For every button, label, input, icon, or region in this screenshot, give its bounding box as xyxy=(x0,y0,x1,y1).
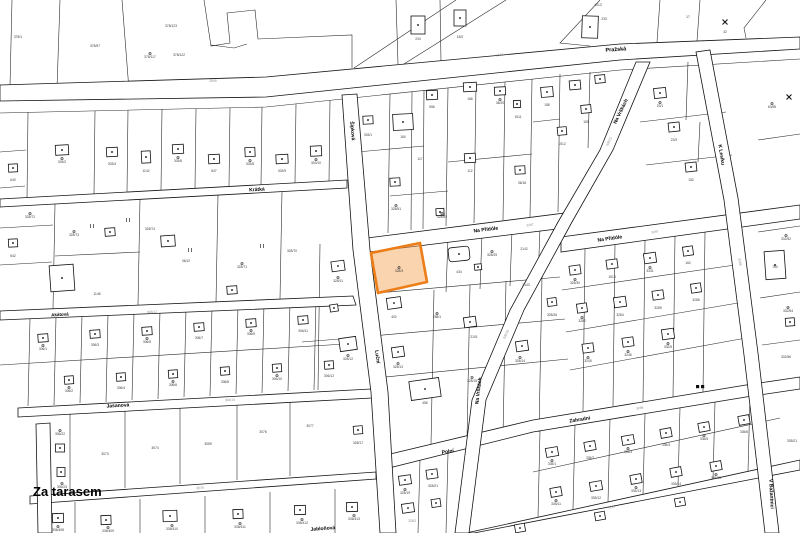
road xyxy=(466,460,800,533)
parcel-label: 303/4 xyxy=(108,162,116,166)
parcel-label: 112 xyxy=(467,169,472,173)
building xyxy=(105,228,116,237)
building-dot xyxy=(516,103,518,105)
parcel-label: 3286 xyxy=(692,298,700,302)
parcel-boundary xyxy=(673,236,675,397)
road xyxy=(18,389,372,417)
building xyxy=(55,145,69,156)
parcel-label: 335/13 xyxy=(631,486,641,493)
building xyxy=(515,166,525,175)
svg-text:328/72: 328/72 xyxy=(25,215,35,219)
building xyxy=(582,16,599,39)
building xyxy=(576,303,587,313)
road xyxy=(342,94,396,533)
parcel-label: 306/2 xyxy=(65,386,73,393)
building-dot xyxy=(250,322,252,324)
building-dot xyxy=(690,166,692,168)
parcel-label: 233 xyxy=(601,17,607,21)
parcel-label: 336/411 xyxy=(234,522,246,529)
parcel-label: 332/5 xyxy=(664,342,672,349)
building-dot xyxy=(172,373,174,375)
parcel-label: 3073 xyxy=(101,452,109,456)
building xyxy=(194,323,205,332)
parcel-label: 306/11 xyxy=(298,329,308,333)
svg-text:3059: 3059 xyxy=(204,442,212,446)
svg-text:328/3: 328/3 xyxy=(395,269,403,273)
building xyxy=(690,283,701,293)
building xyxy=(56,444,65,452)
building xyxy=(276,154,288,164)
building xyxy=(545,447,558,458)
parcel-boundary xyxy=(314,299,316,390)
svg-text:3331: 3331 xyxy=(646,269,654,273)
parcel-boundary xyxy=(54,317,56,405)
parcel-label: 328/21 xyxy=(428,484,438,488)
parcel-boundary xyxy=(27,112,28,198)
parcel-label: 32 xyxy=(723,30,727,34)
svg-text:336/411: 336/411 xyxy=(234,525,246,529)
parcel-label: 306/12 xyxy=(324,374,334,378)
parcel-label: 17 xyxy=(686,15,690,19)
parcel-label: 335/21 xyxy=(787,439,797,443)
parcel-label: 258/1 xyxy=(433,312,441,319)
svg-text:328/13: 328/13 xyxy=(393,365,403,369)
building-dot xyxy=(351,506,353,508)
parcel-label: 1142 xyxy=(142,169,149,173)
street-name-label: Krátká xyxy=(249,186,265,193)
parcel-boundary xyxy=(748,396,750,471)
svg-text:1511: 1511 xyxy=(514,115,521,119)
parcel-label: 3285 xyxy=(654,306,662,310)
svg-text:258/1: 258/1 xyxy=(433,315,441,319)
parcel-boundary xyxy=(210,307,212,396)
svg-text:328/25: 328/25 xyxy=(487,253,497,257)
building-dot xyxy=(599,78,601,80)
building xyxy=(613,296,626,308)
parcel-boundary xyxy=(94,111,95,194)
building-dot xyxy=(687,250,689,252)
svg-text:328/51: 328/51 xyxy=(391,207,401,211)
building xyxy=(339,336,358,351)
building xyxy=(426,90,437,100)
parcel-label: 303/14 xyxy=(225,398,235,403)
parcel-label: 328/51 xyxy=(391,204,401,211)
svg-text:303/2: 303/2 xyxy=(58,160,66,164)
building-dot xyxy=(393,302,395,304)
building-dot xyxy=(61,149,63,151)
building xyxy=(101,515,111,524)
parcel-boundary xyxy=(643,414,645,494)
svg-text:1513: 1513 xyxy=(608,275,616,279)
building xyxy=(49,264,75,292)
svg-text:3282: 3282 xyxy=(578,319,586,323)
parcel-label: 162 xyxy=(685,261,691,265)
building xyxy=(168,370,178,379)
svg-text:328/30: 328/30 xyxy=(570,281,580,285)
parcel-label: 336/408 xyxy=(52,525,64,532)
svg-text:335/14: 335/14 xyxy=(671,482,681,486)
svg-text:306/3: 306/3 xyxy=(91,343,99,347)
svg-text:166: 166 xyxy=(467,97,473,101)
parcel-label: 328/30 xyxy=(570,278,580,285)
building-dot xyxy=(649,257,651,259)
parcel-label: 336/410 xyxy=(166,524,178,531)
building xyxy=(346,502,357,511)
svg-text:847: 847 xyxy=(211,169,217,173)
parcel-boundary xyxy=(329,100,330,181)
svg-text:306/6: 306/6 xyxy=(169,383,177,387)
parcel-label: 306/22 xyxy=(55,429,65,436)
building-dot xyxy=(546,91,548,93)
building-dot xyxy=(715,465,717,467)
building xyxy=(298,316,309,325)
building xyxy=(272,364,282,373)
building-dot xyxy=(111,151,113,153)
parcel-label: 434 xyxy=(456,270,462,274)
svg-text:2142: 2142 xyxy=(520,247,528,251)
building-dot xyxy=(595,485,597,487)
building-dot xyxy=(328,364,330,366)
building xyxy=(710,461,722,472)
building-dot xyxy=(589,445,591,447)
svg-text:303/14: 303/14 xyxy=(225,398,235,403)
parcel-label: 3284 xyxy=(616,313,624,317)
building xyxy=(595,75,606,84)
building-dot xyxy=(167,240,169,242)
parcel-boundary xyxy=(423,90,424,229)
parcel-label: 2142 xyxy=(520,247,528,251)
parcel-label: 556 xyxy=(429,105,435,109)
parcel-boundary xyxy=(280,191,282,299)
parcel-boundary xyxy=(686,62,688,120)
svg-text:36/18: 36/18 xyxy=(518,181,526,185)
svg-text:335/15: 335/15 xyxy=(711,476,721,480)
parcel-label: 335/11 xyxy=(551,499,561,506)
parcel-label: 306/5 xyxy=(143,337,151,344)
highlighted-street-label: Za tarasem xyxy=(33,484,102,499)
building xyxy=(106,147,117,157)
meadow-icon xyxy=(189,248,192,252)
building xyxy=(630,474,642,485)
parcel-label: 642 xyxy=(10,254,16,258)
building xyxy=(393,113,414,130)
svg-text:335/11: 335/11 xyxy=(551,502,561,506)
building-dot xyxy=(299,509,301,511)
parcel-boundary xyxy=(530,79,532,217)
svg-text:328/74: 328/74 xyxy=(145,227,155,231)
building xyxy=(668,122,680,132)
building-dot xyxy=(198,326,200,328)
building-dot xyxy=(333,307,335,309)
svg-text:3078: 3078 xyxy=(196,486,204,491)
svg-text:378/123: 378/123 xyxy=(165,24,177,28)
building-dot xyxy=(169,515,171,517)
street-name-label: Jabloňová xyxy=(310,525,335,533)
parcel-boundary xyxy=(446,88,448,226)
parcel-label: 378/122 xyxy=(173,53,185,57)
svg-text:150: 150 xyxy=(583,120,589,124)
svg-text:306/2: 306/2 xyxy=(65,389,73,393)
parcel-boundary xyxy=(0,186,25,188)
parcel-label: 335/12 xyxy=(591,496,601,500)
building xyxy=(398,475,411,486)
building xyxy=(391,346,404,358)
parcel-label: 328/25 xyxy=(487,250,497,257)
svg-text:328/15: 328/15 xyxy=(467,379,477,383)
svg-text:303/10: 303/10 xyxy=(311,161,321,165)
svg-text:336/413: 336/413 xyxy=(348,517,360,521)
svg-text:332/5: 332/5 xyxy=(664,345,672,349)
building-dot xyxy=(397,351,399,353)
parcel-boundary xyxy=(762,340,800,345)
building-dot xyxy=(551,301,553,303)
meadow-icon xyxy=(261,244,264,248)
meadow-icon xyxy=(127,218,130,222)
building-dot xyxy=(357,429,359,431)
svg-text:328/11: 328/11 xyxy=(333,279,343,283)
parcel-boundary xyxy=(448,154,532,162)
parcel-boundary xyxy=(10,0,12,86)
svg-text:17: 17 xyxy=(686,15,690,19)
building-dot xyxy=(585,108,587,110)
parcel-label: 234 xyxy=(415,37,421,41)
svg-text:234: 234 xyxy=(415,37,421,41)
parcel-label: 3076 xyxy=(259,430,267,434)
building xyxy=(220,367,230,376)
parcel-boundary xyxy=(538,431,540,517)
parcel-label: 36/12 xyxy=(182,259,190,263)
building xyxy=(594,511,605,521)
parcel-boundary xyxy=(0,225,53,228)
parcel-label: 378/123 xyxy=(165,24,177,28)
street-name-label: Akátová xyxy=(51,312,69,318)
parcel-boundary xyxy=(0,262,52,265)
parcel-label: 303/10 xyxy=(311,158,321,165)
parcel-label: 306/10 xyxy=(272,374,282,381)
parcel-label: 3059 xyxy=(204,442,212,446)
parcel-label: 328/73 xyxy=(69,230,79,237)
svg-text:332/54: 332/54 xyxy=(783,309,793,313)
parcel-label: 640 xyxy=(10,178,16,182)
svg-text:112: 112 xyxy=(467,169,472,173)
svg-text:336/410: 336/410 xyxy=(166,527,178,531)
building xyxy=(494,87,505,96)
building xyxy=(161,235,176,247)
parcel-label: 335/3 xyxy=(624,447,632,454)
building xyxy=(363,116,373,125)
svg-text:335/6: 335/6 xyxy=(740,430,748,434)
parcel-label: 303/12 xyxy=(147,310,157,315)
building-dot xyxy=(12,242,14,244)
parcel-label: 328/11 xyxy=(333,276,343,283)
building-dot xyxy=(659,92,661,94)
parcel-boundary xyxy=(261,107,262,185)
building xyxy=(331,260,345,272)
building-dot xyxy=(459,17,461,19)
svg-text:336/408: 336/408 xyxy=(52,528,64,532)
building-dot xyxy=(519,527,521,529)
parcel-label: 3283 xyxy=(408,519,416,523)
building-dot xyxy=(519,169,521,171)
svg-text:306/11: 306/11 xyxy=(298,329,308,333)
parcel-boundary xyxy=(608,419,610,502)
parcel-label: 402 xyxy=(391,315,397,319)
street-name-label: Jasanová xyxy=(106,402,129,409)
svg-text:328/17: 328/17 xyxy=(353,441,363,445)
building-dot xyxy=(120,376,122,378)
building-dot xyxy=(105,519,107,521)
svg-text:1142: 1142 xyxy=(142,169,149,173)
building-dot xyxy=(435,502,437,504)
building xyxy=(233,509,243,518)
meadow-icon xyxy=(91,224,94,228)
building-dot xyxy=(458,253,460,255)
building xyxy=(57,468,65,477)
building-dot xyxy=(657,294,659,296)
cadastral-map[interactable]: 378/1378/57378/123378/117378/12235952341… xyxy=(0,0,800,533)
building xyxy=(464,153,475,163)
parcel-label: 303/6 xyxy=(174,156,182,163)
parcel-label: 117 xyxy=(417,157,422,161)
building-dot xyxy=(555,491,557,493)
building xyxy=(621,435,634,446)
building-dot xyxy=(431,94,433,96)
building-dot xyxy=(302,319,304,321)
parcel-boundary xyxy=(657,0,660,42)
building xyxy=(390,178,400,187)
parcel-label: 160 xyxy=(400,135,406,139)
building xyxy=(294,505,305,514)
building-dot xyxy=(42,337,44,339)
street-name-label: Polní xyxy=(441,448,455,456)
svg-text:1512: 1512 xyxy=(558,142,566,146)
parcel-boundary xyxy=(288,301,290,391)
building-dot xyxy=(635,478,637,480)
parcel-label: 336/412 xyxy=(296,518,308,525)
svg-text:335/3: 335/3 xyxy=(624,450,632,454)
parcel-boundary xyxy=(80,315,82,403)
svg-text:63/55: 63/55 xyxy=(768,105,776,109)
svg-text:328/52: 328/52 xyxy=(437,215,447,219)
building xyxy=(330,304,339,312)
building-dot xyxy=(703,426,705,428)
parcel-label: 152 xyxy=(688,178,694,182)
building xyxy=(514,523,525,533)
svg-text:303/1: 303/1 xyxy=(364,133,372,137)
building xyxy=(8,164,17,172)
parcel-label: 3566 xyxy=(496,53,504,58)
building xyxy=(448,246,470,262)
parcel-boundary xyxy=(55,252,140,256)
parcel-boundary xyxy=(0,150,26,152)
parcel-boundary xyxy=(132,312,134,400)
parcel-label: 328/26 xyxy=(547,313,557,317)
map-viewport[interactable]: 378/1378/57378/123378/117378/12235952341… xyxy=(0,0,800,533)
svg-text:306/8: 306/8 xyxy=(221,380,229,384)
building-dot xyxy=(599,515,601,517)
svg-text:306/4: 306/4 xyxy=(117,386,125,390)
building xyxy=(515,340,528,352)
building xyxy=(685,162,697,172)
parcel-boundary xyxy=(411,92,412,230)
parcel-boundary xyxy=(158,310,160,399)
svg-text:2101: 2101 xyxy=(470,335,478,339)
building xyxy=(142,327,153,336)
building-dot xyxy=(68,379,70,381)
svg-text:640: 640 xyxy=(10,178,16,182)
parcel-boundary xyxy=(388,94,390,233)
parcel-label: 335/2 xyxy=(586,456,594,460)
svg-text:3283: 3283 xyxy=(408,519,416,523)
parcel-label: 23/1 xyxy=(657,101,664,108)
building-dot xyxy=(276,367,278,369)
svg-text:3246: 3246 xyxy=(624,353,632,357)
building xyxy=(643,252,656,264)
building-dot xyxy=(224,370,226,372)
building-dot xyxy=(249,151,251,153)
svg-text:335/1: 335/1 xyxy=(548,462,556,466)
building-dot xyxy=(499,90,501,92)
building-dot xyxy=(57,517,59,519)
svg-text:306/10: 306/10 xyxy=(272,377,282,381)
building xyxy=(589,481,602,492)
parcel-boundary xyxy=(440,0,441,62)
parcel-label: 780 xyxy=(772,265,778,269)
parcel-label: 63/55 xyxy=(768,102,776,109)
building-dot xyxy=(574,84,576,86)
parcel-label: 150 xyxy=(583,120,589,124)
parcel-boundary xyxy=(216,195,218,302)
svg-text:3286: 3286 xyxy=(692,298,700,302)
building-dot xyxy=(581,307,583,309)
svg-text:3566: 3566 xyxy=(496,53,504,58)
building xyxy=(246,319,257,328)
parcel-label: 378/57 xyxy=(90,44,100,48)
building-dot xyxy=(439,211,441,213)
svg-text:303/12: 303/12 xyxy=(147,310,157,315)
building xyxy=(431,498,441,507)
building xyxy=(738,415,750,426)
building xyxy=(785,318,795,327)
svg-text:3285: 3285 xyxy=(654,306,662,310)
parcel-label: 335/1 xyxy=(548,459,556,466)
svg-text:117: 117 xyxy=(417,157,422,161)
parcel-label: 847 xyxy=(211,169,217,173)
svg-text:306/5: 306/5 xyxy=(143,340,151,344)
parcel-boundary xyxy=(562,264,742,290)
parcel-label: 335/14 xyxy=(671,482,681,486)
building-dot xyxy=(109,231,111,233)
building-dot xyxy=(469,86,471,88)
building xyxy=(64,376,74,385)
svg-text:3074: 3074 xyxy=(151,446,159,450)
svg-text:233: 233 xyxy=(601,17,607,21)
svg-text:152: 152 xyxy=(688,178,694,182)
parcel-label: 303/1 xyxy=(364,133,372,137)
parcel-label: 335/4 xyxy=(662,443,670,447)
building xyxy=(581,105,592,114)
building xyxy=(401,503,414,514)
parcel-boundary xyxy=(744,0,766,38)
building xyxy=(513,100,520,107)
building xyxy=(454,10,466,26)
parcel-boundary xyxy=(106,314,108,402)
building xyxy=(654,87,667,98)
svg-text:378/122: 378/122 xyxy=(173,53,185,57)
svg-text:158: 158 xyxy=(544,103,550,107)
building-dot xyxy=(431,473,433,475)
marker-icon xyxy=(696,385,704,388)
